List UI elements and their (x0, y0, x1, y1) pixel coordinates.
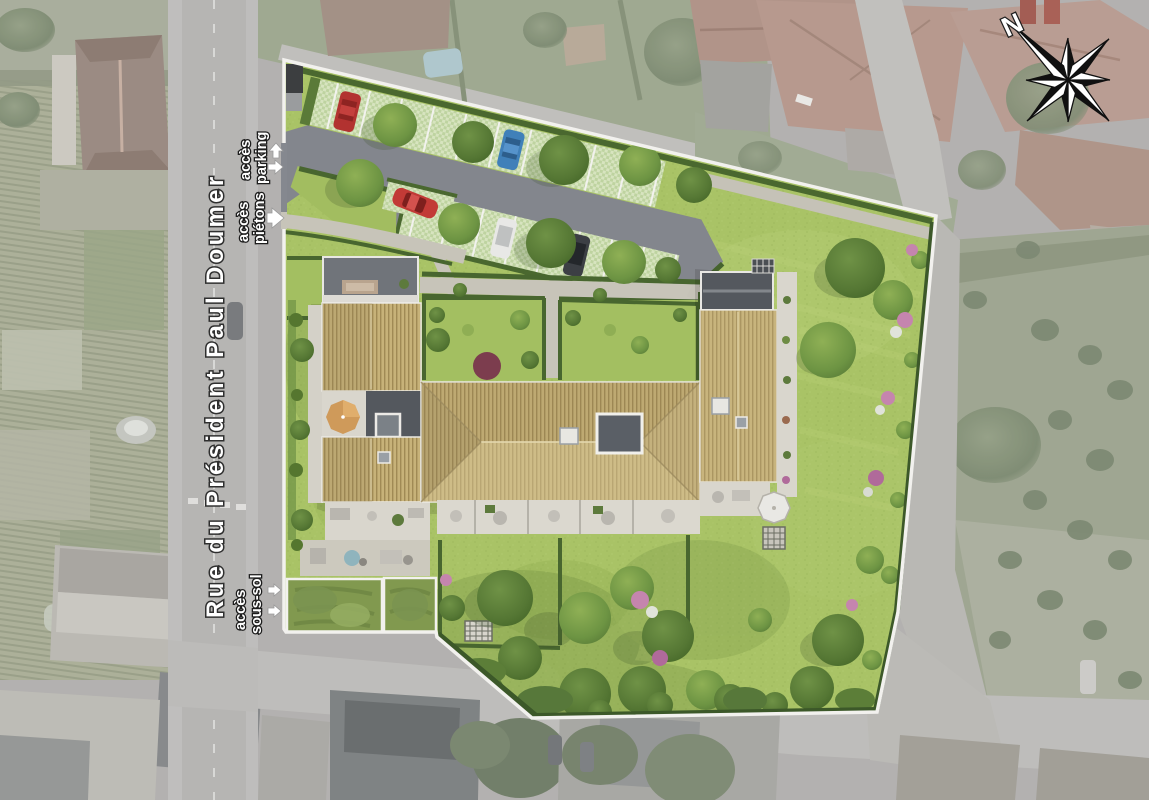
svg-text:sous-sol: sous-sol (249, 574, 265, 634)
svg-text:accès: accès (238, 140, 254, 180)
svg-text:parking: parking (254, 132, 270, 184)
svg-text:piétons: piétons (252, 192, 268, 244)
svg-text:Rue du Président Paul Doumer: Rue du Président Paul Doumer (202, 174, 229, 618)
svg-text:accès: accès (236, 202, 252, 242)
svg-text:accès: accès (233, 590, 249, 630)
